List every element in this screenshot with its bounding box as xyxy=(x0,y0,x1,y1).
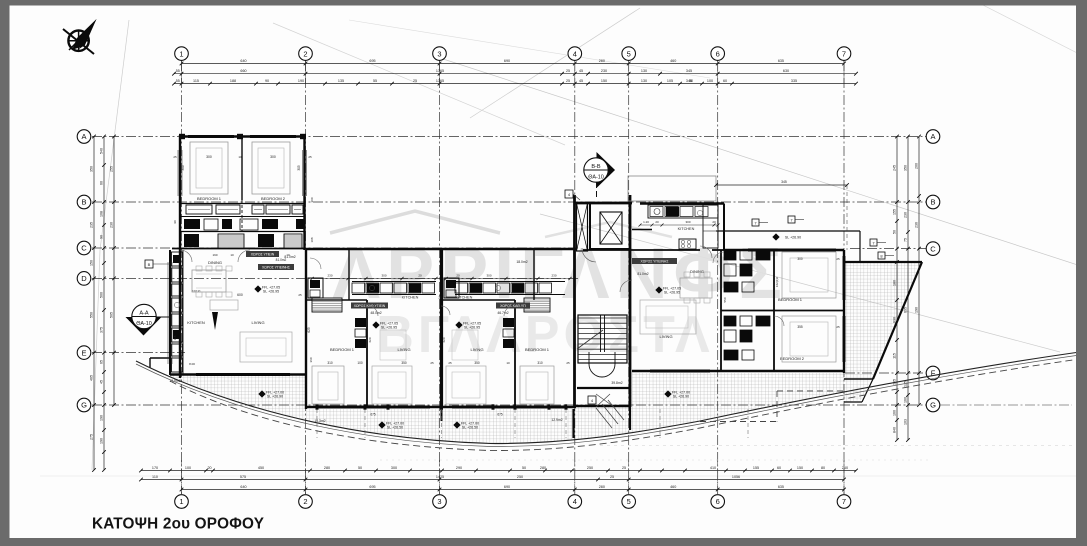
svg-text:20: 20 xyxy=(207,466,211,470)
svg-text:150: 150 xyxy=(601,79,607,83)
svg-text:LIVING: LIVING xyxy=(397,347,410,352)
svg-text:DINING: DINING xyxy=(690,269,704,274)
svg-text:ΘA-10: ΘA-10 xyxy=(588,174,604,180)
svg-text:300: 300 xyxy=(206,155,212,159)
svg-text:350: 350 xyxy=(401,361,407,365)
svg-text:135: 135 xyxy=(338,79,344,83)
svg-text:25: 25 xyxy=(566,69,570,73)
svg-text:25: 25 xyxy=(622,466,626,470)
svg-text:3: 3 xyxy=(437,497,441,506)
svg-text:ΘA-10: ΘA-10 xyxy=(136,321,152,327)
svg-text:4: 4 xyxy=(573,497,577,506)
svg-text:150: 150 xyxy=(797,466,803,470)
svg-text:108: 108 xyxy=(100,211,104,217)
svg-text:45: 45 xyxy=(579,69,583,73)
svg-text:105: 105 xyxy=(667,79,673,83)
svg-text:ΧΩΡΟΣ ΥΓΙΕΙΝΗΣ: ΧΩΡΟΣ ΥΓΙΕΙΝΗΣ xyxy=(641,259,669,263)
svg-text:300: 300 xyxy=(181,165,185,171)
svg-text:25: 25 xyxy=(298,293,302,297)
svg-text:640: 640 xyxy=(240,59,246,63)
svg-text:60: 60 xyxy=(723,79,727,83)
svg-text:150: 150 xyxy=(90,260,94,266)
svg-text:10: 10 xyxy=(238,155,242,159)
svg-text:840: 840 xyxy=(893,427,897,433)
svg-text:350: 350 xyxy=(90,166,94,172)
svg-text:48.0m2: 48.0m2 xyxy=(370,311,381,315)
svg-text:1365: 1365 xyxy=(436,79,444,83)
svg-text:SL +26.50: SL +26.50 xyxy=(387,426,403,430)
svg-text:5: 5 xyxy=(627,49,631,58)
svg-text:1365: 1365 xyxy=(436,69,444,73)
svg-text:A: A xyxy=(930,132,935,141)
svg-text:300: 300 xyxy=(486,274,491,278)
svg-text:170: 170 xyxy=(152,466,158,470)
svg-text:230: 230 xyxy=(904,212,908,218)
svg-text:SL +26.90: SL +26.90 xyxy=(673,395,689,399)
svg-text:275: 275 xyxy=(90,434,94,440)
svg-text:50: 50 xyxy=(893,230,897,234)
svg-text:25: 25 xyxy=(566,361,570,365)
svg-text:SL +26.95: SL +26.95 xyxy=(464,326,480,330)
svg-text:ΚΑΤΟΨΗ 2ου ΟΡΟΦΟΥ: ΚΑΤΟΨΗ 2ου ΟΡΟΦΟΥ xyxy=(92,516,264,533)
svg-text:675: 675 xyxy=(370,413,376,417)
svg-text:450: 450 xyxy=(258,466,264,470)
svg-text:200: 200 xyxy=(915,163,919,169)
svg-text:55: 55 xyxy=(176,69,180,73)
svg-text:635: 635 xyxy=(778,59,784,63)
svg-text:12.9m2: 12.9m2 xyxy=(551,418,562,422)
svg-text:310: 310 xyxy=(537,361,543,365)
svg-text:KITCHEN: KITCHEN xyxy=(456,296,473,300)
svg-text:103: 103 xyxy=(904,419,908,425)
svg-text:130: 130 xyxy=(641,79,647,83)
svg-text:355: 355 xyxy=(797,325,803,329)
svg-text:65: 65 xyxy=(100,360,104,364)
svg-text:BEDROOM 2: BEDROOM 2 xyxy=(261,196,286,201)
svg-text:280: 280 xyxy=(324,466,330,470)
svg-text:300: 300 xyxy=(270,155,276,159)
svg-text:60: 60 xyxy=(777,466,781,470)
svg-text:690: 690 xyxy=(504,59,510,63)
svg-text:7: 7 xyxy=(842,49,846,58)
svg-text:75: 75 xyxy=(904,238,908,242)
svg-text:345: 345 xyxy=(781,180,787,184)
svg-text:7: 7 xyxy=(842,497,846,506)
svg-text:1056: 1056 xyxy=(732,475,740,479)
svg-text:25: 25 xyxy=(836,257,840,261)
svg-text:45: 45 xyxy=(579,79,583,83)
svg-text:108: 108 xyxy=(310,237,314,242)
svg-text:KITCHEN: KITCHEN xyxy=(187,320,205,325)
svg-text:690: 690 xyxy=(504,485,510,489)
svg-text:B-B: B-B xyxy=(591,164,601,170)
svg-text:E: E xyxy=(81,348,86,357)
svg-text:60: 60 xyxy=(100,181,104,185)
svg-text:155: 155 xyxy=(753,466,759,470)
svg-text:115: 115 xyxy=(173,335,177,340)
svg-text:410: 410 xyxy=(710,466,716,470)
svg-text:6: 6 xyxy=(716,497,720,506)
svg-text:39.8m2: 39.8m2 xyxy=(611,381,622,385)
svg-text:460: 460 xyxy=(670,485,676,489)
svg-text:625: 625 xyxy=(307,327,311,333)
svg-text:10: 10 xyxy=(230,253,234,257)
svg-text:375: 375 xyxy=(100,327,104,333)
svg-text:620: 620 xyxy=(442,337,446,342)
svg-text:80: 80 xyxy=(821,466,825,470)
svg-text:KITCHEN: KITCHEN xyxy=(678,227,695,231)
svg-text:250: 250 xyxy=(517,475,523,479)
svg-text:162(1)0: 162(1)0 xyxy=(775,277,779,288)
svg-text:20: 20 xyxy=(655,220,659,224)
svg-text:6: 6 xyxy=(716,49,720,58)
svg-text:D: D xyxy=(81,274,87,283)
svg-text:1425: 1425 xyxy=(436,475,444,479)
svg-text:640: 640 xyxy=(240,485,246,489)
svg-text:18.0m2: 18.0m2 xyxy=(516,260,527,264)
svg-text:550: 550 xyxy=(90,312,94,318)
svg-text:155: 155 xyxy=(893,209,897,215)
svg-text:55: 55 xyxy=(176,79,180,83)
svg-text:100: 100 xyxy=(707,79,713,83)
svg-text:630: 630 xyxy=(783,69,789,73)
svg-text:25: 25 xyxy=(448,361,452,365)
svg-text:255: 255 xyxy=(110,166,114,172)
svg-text:SL +26.50: SL +26.50 xyxy=(462,426,478,430)
svg-text:20: 20 xyxy=(418,274,422,278)
svg-text:25: 25 xyxy=(413,79,417,83)
svg-text:25: 25 xyxy=(430,361,434,365)
svg-text:360: 360 xyxy=(309,357,313,362)
svg-text:230: 230 xyxy=(551,274,556,278)
svg-text:245: 245 xyxy=(893,165,897,171)
svg-text:SL +26.95: SL +26.95 xyxy=(263,290,279,294)
svg-text:190: 190 xyxy=(100,438,104,444)
svg-text:300: 300 xyxy=(381,274,386,278)
svg-text:BEDROOM 1: BEDROOM 1 xyxy=(330,347,355,352)
svg-text:236: 236 xyxy=(915,222,919,228)
svg-text:635: 635 xyxy=(904,307,908,313)
svg-text:305: 305 xyxy=(297,165,301,171)
svg-text:190: 190 xyxy=(298,79,304,83)
svg-text:SL +26.90: SL +26.90 xyxy=(785,236,801,240)
svg-text:25: 25 xyxy=(836,325,840,329)
svg-text:190: 190 xyxy=(100,415,104,421)
svg-text:300: 300 xyxy=(797,257,803,261)
svg-text:2: 2 xyxy=(303,497,307,506)
svg-text:55: 55 xyxy=(373,79,377,83)
svg-text:8.00: 8.00 xyxy=(189,362,195,366)
svg-text:KITCHEN: KITCHEN xyxy=(402,296,419,300)
svg-text:130: 130 xyxy=(641,69,647,73)
svg-text:C: C xyxy=(81,244,87,253)
svg-text:B: B xyxy=(930,198,935,207)
svg-text:260: 260 xyxy=(842,466,848,470)
svg-text:50: 50 xyxy=(522,466,526,470)
svg-text:660: 660 xyxy=(240,69,246,73)
svg-text:25: 25 xyxy=(610,475,614,479)
svg-text:250: 250 xyxy=(587,466,593,470)
svg-text:160: 160 xyxy=(893,410,897,416)
svg-text:300: 300 xyxy=(310,197,314,202)
svg-text:695: 695 xyxy=(369,59,375,63)
svg-text:BEDROOM 1: BEDROOM 1 xyxy=(525,347,550,352)
svg-text:1: 1 xyxy=(179,497,183,506)
svg-text:20: 20 xyxy=(456,274,460,278)
svg-text:188: 188 xyxy=(230,79,236,83)
svg-text:81.0m2: 81.0m2 xyxy=(276,258,287,262)
svg-text:235: 235 xyxy=(90,222,94,228)
svg-text:BEDROOM 2: BEDROOM 2 xyxy=(780,356,805,361)
svg-text:2: 2 xyxy=(303,49,307,58)
svg-text:350: 350 xyxy=(474,361,480,365)
svg-text:ΛΡΡΙΓΛΝΦΣ: ΛΡΡΙΓΛΝΦΣ xyxy=(332,234,788,314)
svg-text:505: 505 xyxy=(110,312,114,318)
svg-text:335: 335 xyxy=(791,79,797,83)
svg-text:20: 20 xyxy=(712,220,716,224)
svg-text:310: 310 xyxy=(327,361,333,365)
svg-text:540: 540 xyxy=(100,148,104,154)
svg-text:25: 25 xyxy=(308,155,312,159)
svg-text:BEDROOM 1: BEDROOM 1 xyxy=(197,196,222,201)
svg-text:SL +26.90: SL +26.90 xyxy=(267,395,283,399)
svg-text:90: 90 xyxy=(173,220,177,224)
svg-text:575: 575 xyxy=(240,475,246,479)
svg-text:SL +26.95: SL +26.95 xyxy=(381,326,397,330)
svg-text:620: 620 xyxy=(368,337,372,342)
svg-text:600: 600 xyxy=(237,293,243,297)
svg-text:5: 5 xyxy=(627,497,631,506)
svg-text:B: B xyxy=(81,198,86,207)
svg-text:160: 160 xyxy=(904,397,908,403)
svg-text:25: 25 xyxy=(438,296,442,300)
svg-text:100: 100 xyxy=(185,466,191,470)
svg-text:465: 465 xyxy=(90,375,94,381)
svg-text:ΧΩΡΟΣ ΥΓΙΕΙΝ: ΧΩΡΟΣ ΥΓΙΕΙΝ xyxy=(251,252,275,256)
svg-text:115: 115 xyxy=(893,353,897,359)
svg-text:90: 90 xyxy=(100,235,104,239)
svg-text:300: 300 xyxy=(391,466,397,470)
svg-text:90: 90 xyxy=(689,79,693,83)
svg-text:500: 500 xyxy=(100,292,104,298)
svg-text:A: A xyxy=(81,132,86,141)
svg-text:280: 280 xyxy=(599,59,605,63)
svg-text:A-A: A-A xyxy=(139,310,149,316)
svg-text:300: 300 xyxy=(685,220,690,224)
svg-text:100: 100 xyxy=(357,361,363,365)
svg-text:115: 115 xyxy=(193,79,199,83)
svg-text:675: 675 xyxy=(497,413,503,417)
svg-text:550: 550 xyxy=(723,297,727,302)
svg-text:290: 290 xyxy=(456,466,462,470)
svg-text:50: 50 xyxy=(358,466,362,470)
svg-text:280: 280 xyxy=(599,485,605,489)
svg-text:695: 695 xyxy=(369,485,375,489)
svg-text:46.7m2: 46.7m2 xyxy=(497,311,508,315)
svg-text:25: 25 xyxy=(566,79,570,83)
svg-text:635: 635 xyxy=(778,485,784,489)
svg-text:SL +26.95: SL +26.95 xyxy=(664,291,680,295)
svg-text:B: B xyxy=(148,262,151,267)
svg-text:345: 345 xyxy=(686,69,692,73)
svg-text:280: 280 xyxy=(540,466,546,470)
svg-text:G: G xyxy=(81,401,87,410)
svg-text:180: 180 xyxy=(893,280,897,286)
svg-text:1.20: 1.20 xyxy=(643,220,649,224)
svg-text:190: 190 xyxy=(915,307,919,313)
svg-text:LIVING: LIVING xyxy=(470,347,483,352)
svg-text:110: 110 xyxy=(152,475,158,479)
svg-text:LIVING: LIVING xyxy=(251,320,264,325)
svg-text:350: 350 xyxy=(904,165,908,171)
svg-text:45: 45 xyxy=(100,380,104,384)
svg-text:81.0m2: 81.0m2 xyxy=(637,272,648,276)
svg-text:230: 230 xyxy=(110,222,114,228)
svg-text:90: 90 xyxy=(265,79,269,83)
svg-text:ΧΩΡΟΣ ΥΓΙΕΙΝΗΣ: ΧΩΡΟΣ ΥΓΙΕΙΝΗΣ xyxy=(262,265,290,269)
svg-text:4: 4 xyxy=(573,49,577,58)
svg-text:DINING: DINING xyxy=(208,260,222,265)
svg-text:460: 460 xyxy=(670,59,676,63)
svg-text:25: 25 xyxy=(173,155,177,159)
svg-text:C: C xyxy=(930,244,936,253)
svg-text:230: 230 xyxy=(601,69,607,73)
svg-text:190: 190 xyxy=(212,253,217,257)
svg-text:3: 3 xyxy=(437,49,441,58)
svg-text:LIVING: LIVING xyxy=(659,334,672,339)
svg-text:1: 1 xyxy=(179,49,183,58)
svg-text:G: G xyxy=(930,401,936,410)
svg-text:10: 10 xyxy=(506,361,510,365)
svg-text:230: 230 xyxy=(327,274,332,278)
